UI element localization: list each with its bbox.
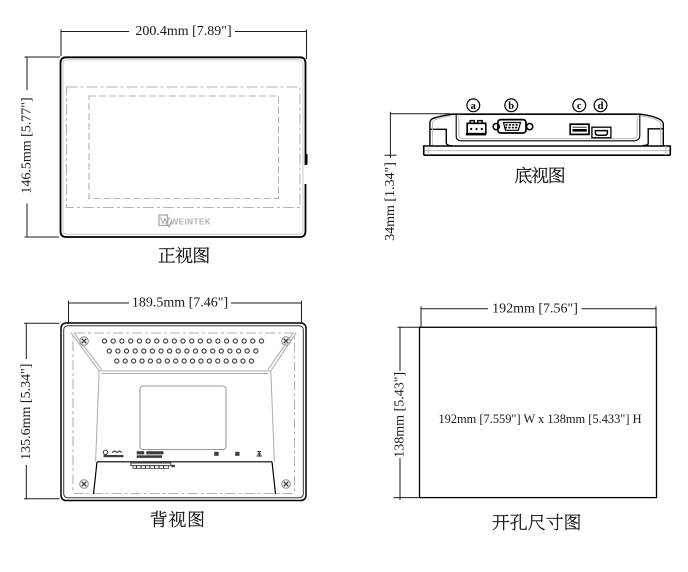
- svg-text:WEINTEK: WEINTEK: [171, 218, 212, 227]
- svg-text:138mm [5.43"]: 138mm [5.43"]: [393, 372, 408, 458]
- svg-text:b: b: [508, 101, 514, 112]
- svg-text:a: a: [471, 101, 477, 112]
- svg-text:d: d: [598, 101, 604, 112]
- svg-text:192mm [7.559"] W x 138mm [5.43: 192mm [7.559"] W x 138mm [5.433"] H: [438, 412, 641, 426]
- svg-text:34mm [1.34"]: 34mm [1.34"]: [383, 162, 398, 241]
- svg-text:189.5mm [7.46"]: 189.5mm [7.46"]: [132, 296, 228, 311]
- svg-text:200.4mm [7.89"]: 200.4mm [7.89"]: [135, 24, 231, 39]
- svg-text:135.6mm [5.34"]: 135.6mm [5.34"]: [19, 364, 34, 460]
- svg-text:192mm [7.56"]: 192mm [7.56"]: [492, 301, 578, 316]
- svg-text:146.5mm [5.77"]: 146.5mm [5.77"]: [20, 97, 35, 193]
- svg-text:c: c: [577, 101, 582, 112]
